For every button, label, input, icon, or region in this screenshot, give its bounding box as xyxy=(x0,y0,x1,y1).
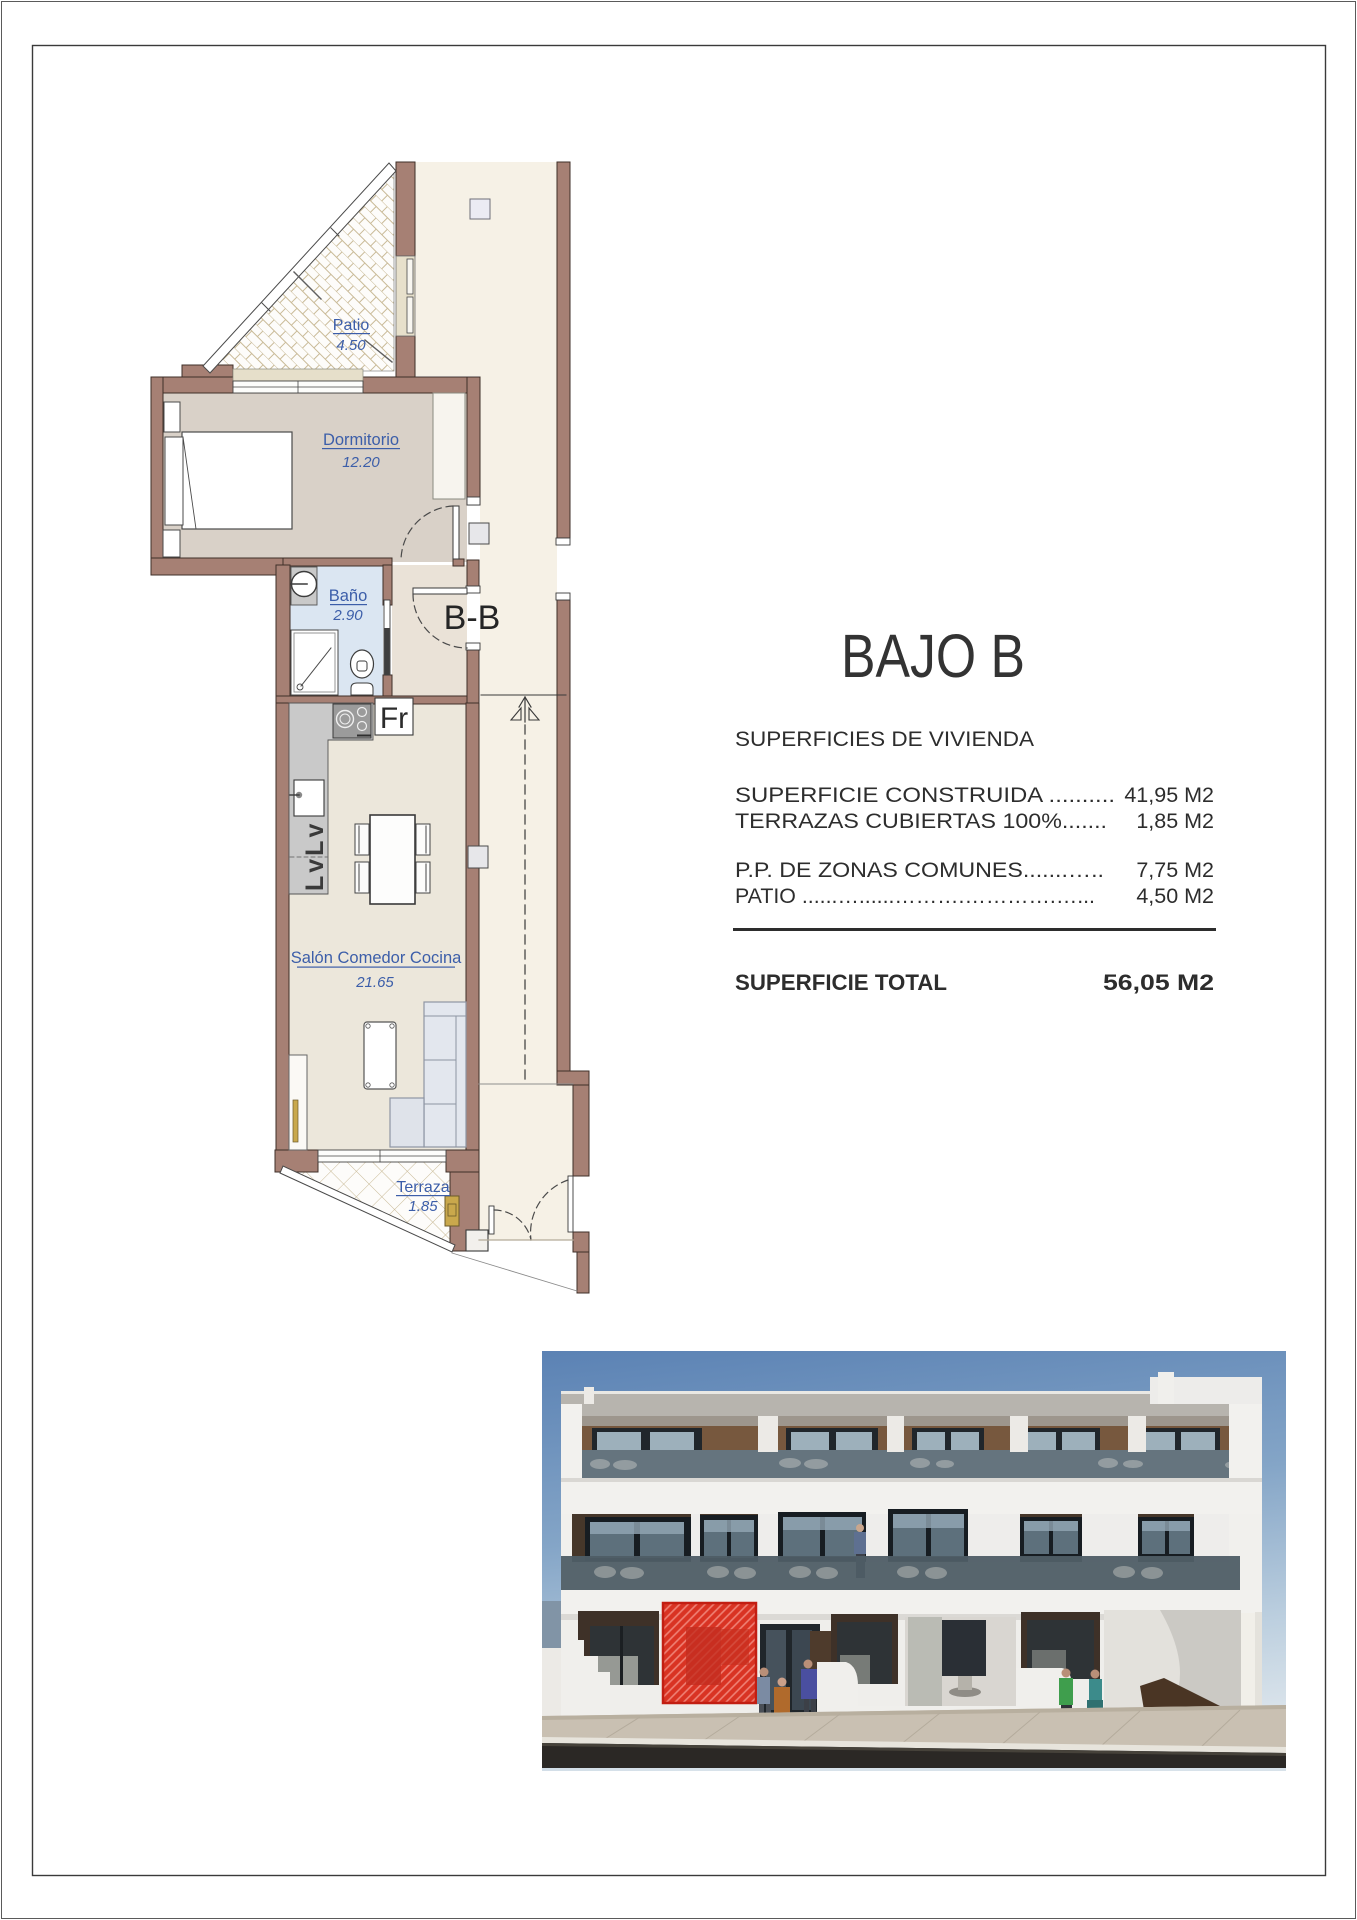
svg-text:1,85 M2: 1,85 M2 xyxy=(1136,809,1214,833)
svg-text:2.90: 2.90 xyxy=(332,607,363,624)
svg-text:Salón Comedor Cocina: Salón Comedor Cocina xyxy=(291,949,462,967)
svg-text:B-B: B-B xyxy=(444,599,501,637)
svg-text:TERRAZAS CUBIERTAS 100%.......: TERRAZAS CUBIERTAS 100%....... xyxy=(735,809,1107,833)
svg-text:4,50 M2: 4,50 M2 xyxy=(1136,884,1214,908)
svg-text:56,05 M2: 56,05 M2 xyxy=(1103,970,1214,995)
svg-text:SUPERFICIE CONSTRUIDA ........: SUPERFICIE CONSTRUIDA .......... xyxy=(735,783,1115,807)
svg-text:BAJO B: BAJO B xyxy=(841,622,1025,690)
svg-text:Fr: Fr xyxy=(380,702,408,735)
svg-text:LvLv: LvLv xyxy=(301,821,329,891)
svg-text:4.50: 4.50 xyxy=(336,337,366,354)
svg-text:SUPERFICIE TOTAL: SUPERFICIE TOTAL xyxy=(735,970,947,995)
svg-text:7,75 M2: 7,75 M2 xyxy=(1136,858,1214,882)
svg-text:Terraza: Terraza xyxy=(396,1179,449,1196)
svg-text:12.20: 12.20 xyxy=(342,454,380,471)
svg-text:41,95 M2: 41,95 M2 xyxy=(1124,783,1214,807)
svg-text:1.85: 1.85 xyxy=(408,1198,438,1215)
svg-text:21.65: 21.65 xyxy=(355,974,394,991)
svg-text:P.P. DE ZONAS COMUNES.......….: P.P. DE ZONAS COMUNES.......….. xyxy=(735,858,1104,882)
svg-text:Patio: Patio xyxy=(333,317,370,334)
svg-text:Dormitorio: Dormitorio xyxy=(323,431,399,449)
svg-text:SUPERFICIES DE VIVIENDA: SUPERFICIES DE VIVIENDA xyxy=(735,727,1035,751)
svg-text:Baño: Baño xyxy=(329,587,368,605)
svg-text:PATIO ......…......……….………….….: PATIO ......…......……….………….…... xyxy=(735,884,1095,908)
